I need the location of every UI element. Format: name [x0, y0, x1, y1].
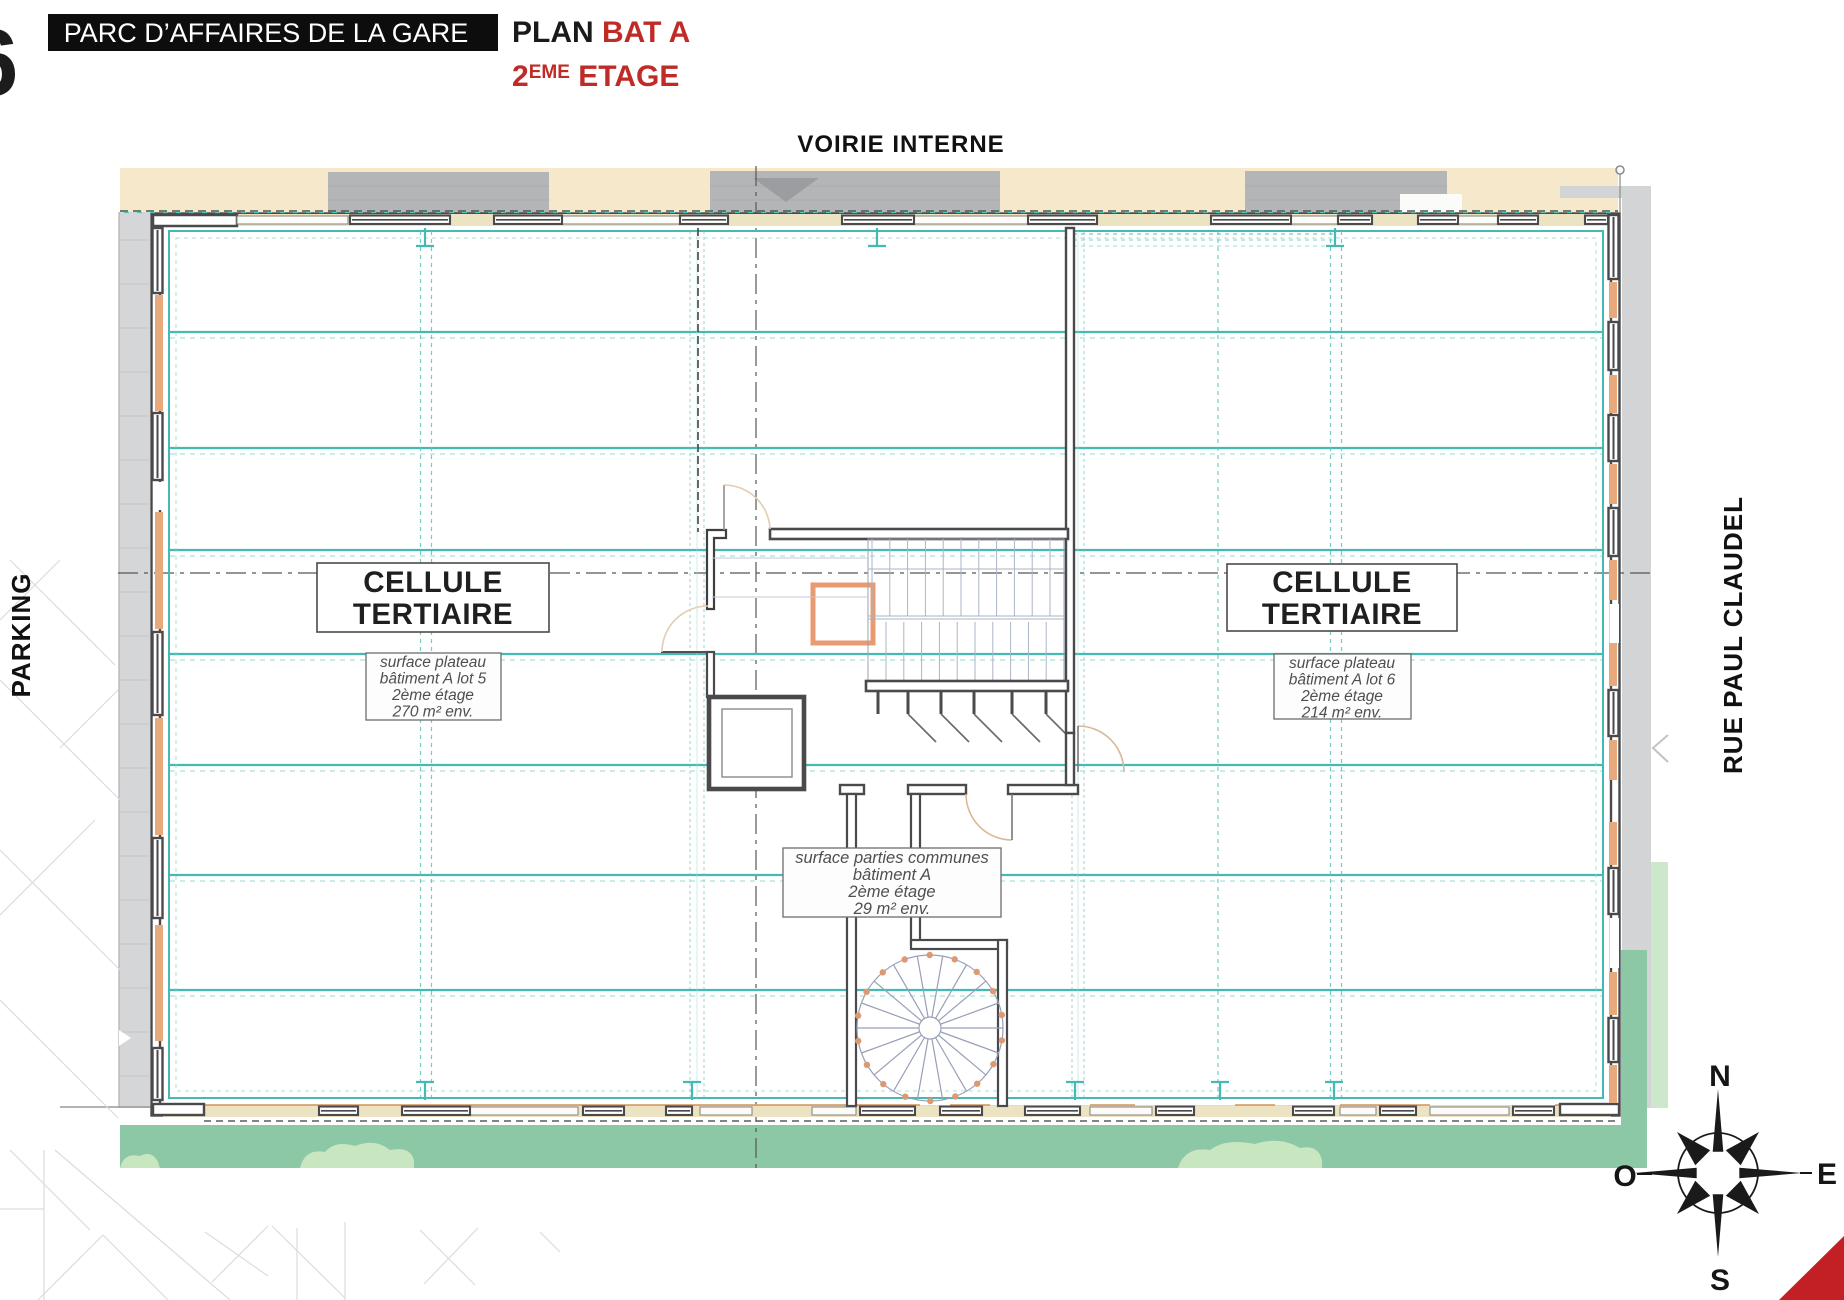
svg-text:2ème étage: 2ème étage	[1300, 688, 1383, 705]
svg-text:CELLULE: CELLULE	[1272, 566, 1412, 599]
svg-text:29 m² env.: 29 m² env.	[853, 900, 931, 918]
svg-text:S: S	[1710, 1264, 1730, 1297]
svg-text:RUE PAUL CLAUDEL: RUE PAUL CLAUDEL	[1718, 496, 1748, 774]
svg-text:270 m² env.: 270 m² env.	[392, 704, 474, 721]
svg-text:N: N	[1709, 1060, 1731, 1093]
svg-text:TERTIAIRE: TERTIAIRE	[353, 598, 513, 631]
svg-text:bâtiment A: bâtiment A	[853, 866, 931, 884]
svg-text:PLAN BAT A: PLAN BAT A	[512, 16, 690, 49]
svg-text:214 m² env.: 214 m² env.	[1301, 705, 1383, 722]
svg-text:bâtiment A lot 5: bâtiment A lot 5	[380, 671, 487, 688]
svg-text:E: E	[1817, 1158, 1837, 1191]
svg-text:VOIRIE INTERNE: VOIRIE INTERNE	[797, 131, 1004, 158]
svg-text:surface plateau: surface plateau	[380, 654, 486, 671]
svg-text:2ème étage: 2ème étage	[391, 687, 474, 704]
svg-text:surface plateau: surface plateau	[1289, 655, 1395, 672]
svg-text:bâtiment A lot 6: bâtiment A lot 6	[1289, 672, 1396, 689]
svg-text:2ème étage: 2ème étage	[847, 883, 935, 901]
svg-text:PARKING: PARKING	[6, 573, 36, 698]
svg-text:PARC D’AFFAIRES DE LA GARE: PARC D’AFFAIRES DE LA GARE	[64, 18, 469, 48]
svg-text:CELLULE: CELLULE	[363, 566, 503, 599]
svg-text:surface parties communes: surface parties communes	[795, 849, 989, 867]
svg-text:TERTIAIRE: TERTIAIRE	[1262, 598, 1422, 631]
svg-text:O: O	[1613, 1160, 1636, 1193]
svg-text:6: 6	[0, 10, 18, 116]
